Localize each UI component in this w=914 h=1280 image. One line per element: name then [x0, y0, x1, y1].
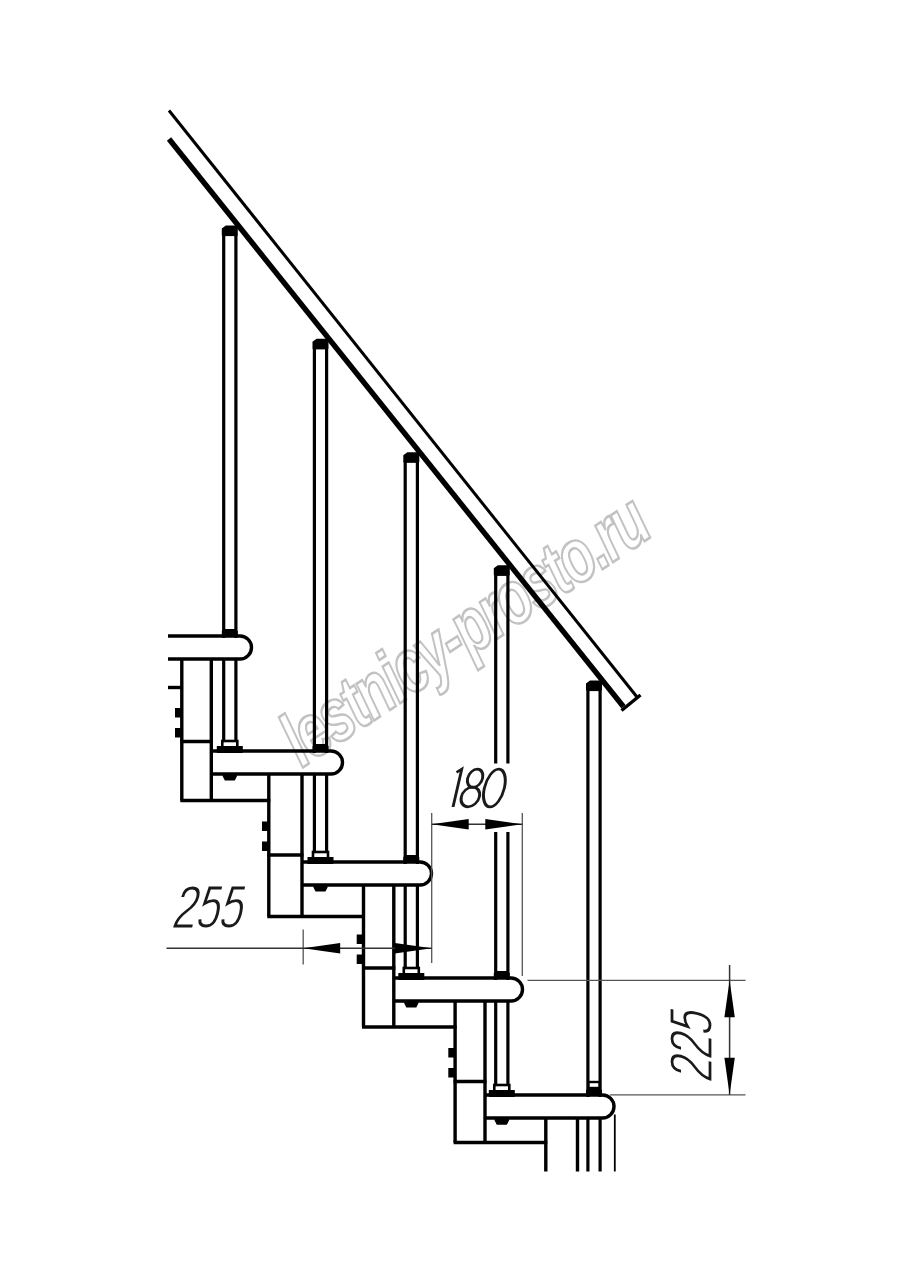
svg-text:lestnicy-prosto.ru: lestnicy-prosto.ru	[264, 477, 664, 782]
